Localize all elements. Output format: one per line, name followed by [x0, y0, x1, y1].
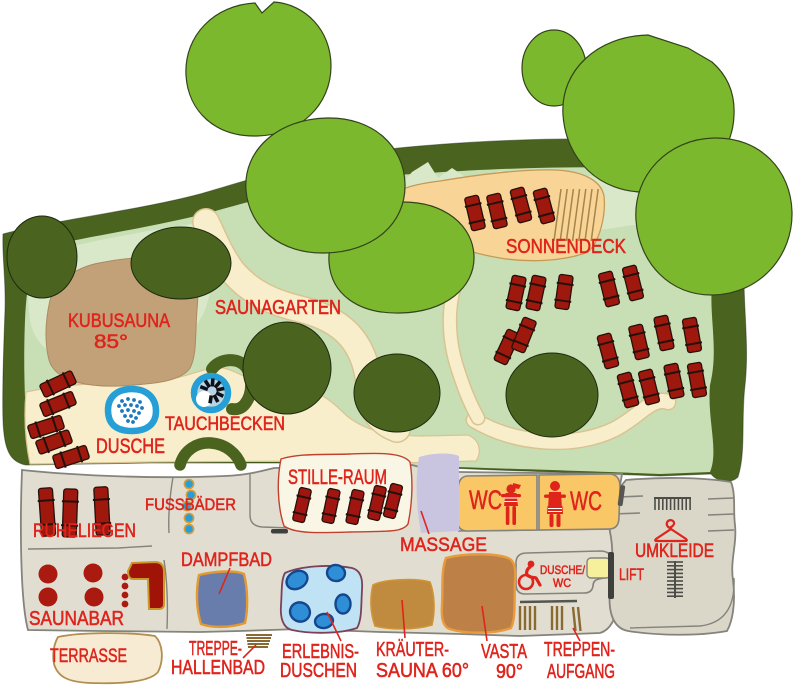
svg-text:TAUCHBECKEN: TAUCHBECKEN [165, 414, 285, 435]
svg-text:FUSSBÄDER: FUSSBÄDER [145, 495, 236, 514]
svg-text:LIFT: LIFT [619, 565, 644, 584]
svg-text:WC: WC [469, 485, 502, 515]
svg-text:DUSCHE: DUSCHE [96, 435, 165, 458]
svg-text:DAMPFBAD: DAMPFBAD [181, 550, 272, 571]
svg-text:85°: 85° [94, 332, 128, 353]
svg-text:KRÄUTER-: KRÄUTER- [376, 639, 449, 661]
svg-text:DUSCHE/: DUSCHE/ [540, 563, 586, 577]
svg-text:TERRASSE: TERRASSE [50, 646, 127, 667]
svg-text:SAUNAGARTEN: SAUNAGARTEN [215, 297, 341, 319]
svg-text:DUSCHEN: DUSCHEN [280, 660, 357, 682]
svg-text:STILLE-RAUM: STILLE-RAUM [288, 466, 387, 489]
svg-text:SAUNA 60°: SAUNA 60° [376, 660, 469, 682]
svg-text:VASTA: VASTA [481, 641, 527, 663]
svg-text:HALLENBAD: HALLENBAD [171, 657, 265, 679]
svg-text:KUBUSAUNA: KUBUSAUNA [68, 311, 170, 332]
svg-text:UMKLEIDE: UMKLEIDE [635, 541, 714, 562]
svg-text:SAUNABAR: SAUNABAR [29, 608, 124, 630]
svg-text:AUFGANG: AUFGANG [547, 661, 615, 683]
svg-text:TREPPEN-: TREPPEN- [544, 639, 615, 661]
svg-text:90°: 90° [496, 661, 523, 683]
svg-text:RUHELIEGEN: RUHELIEGEN [33, 521, 136, 542]
svg-text:SONNENDECK: SONNENDECK [506, 236, 627, 258]
svg-text:WC: WC [553, 576, 571, 590]
svg-text:MASSAGE: MASSAGE [400, 535, 487, 556]
svg-text:WC: WC [570, 486, 602, 516]
